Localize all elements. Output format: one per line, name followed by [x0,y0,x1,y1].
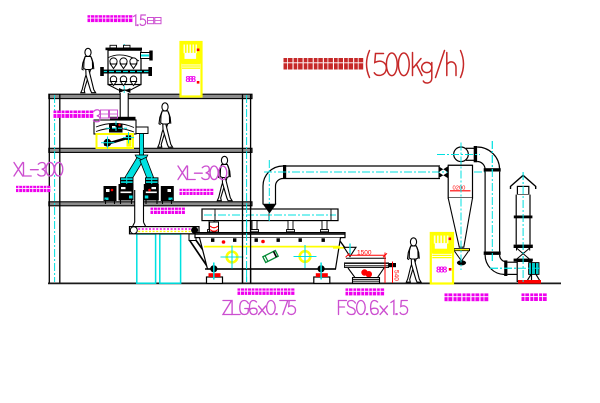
svg-text:888: 888 [436,265,447,275]
svg-text:888: 888 [186,74,197,84]
svg-text:540: 540 [393,270,400,281]
svg-text:1500: 1500 [357,249,372,256]
